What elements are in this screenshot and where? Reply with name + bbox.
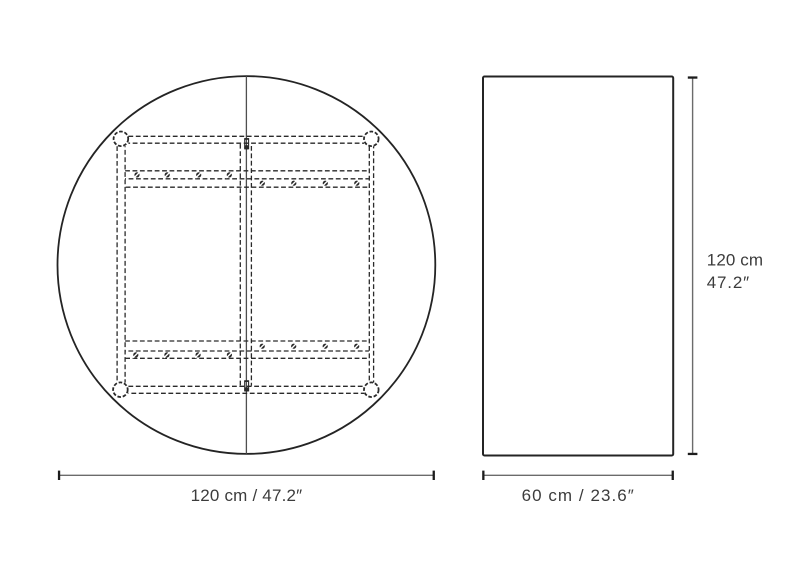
svg-text:120 cm: 120 cm bbox=[707, 250, 763, 269]
svg-text:47.2″: 47.2″ bbox=[707, 273, 750, 292]
svg-text:60 cm / 23.6″: 60 cm / 23.6″ bbox=[522, 486, 635, 505]
svg-text:120 cm / 47.2″: 120 cm / 47.2″ bbox=[191, 486, 303, 505]
